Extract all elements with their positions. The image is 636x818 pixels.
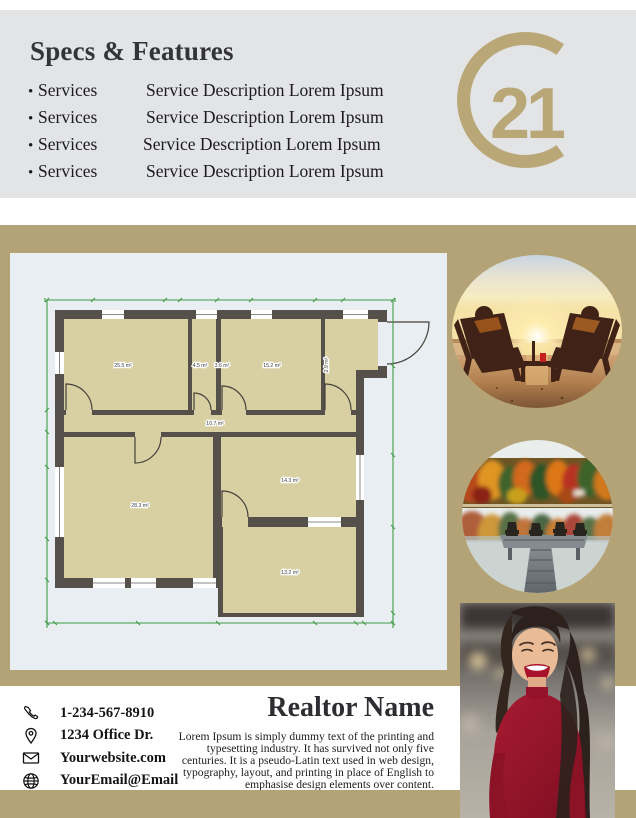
flyer-page: Specs & Features • Services Service Desc… xyxy=(0,0,636,818)
red-cup xyxy=(540,353,546,362)
bullet-icon: • xyxy=(28,165,38,182)
beach-sunset-photo xyxy=(452,255,622,408)
bullet-icon: • xyxy=(28,84,38,101)
phone-number: 1-234-567-8910 xyxy=(60,705,154,722)
page-title: Specs & Features xyxy=(30,36,234,67)
service-name: Services xyxy=(38,107,146,128)
service-description: Service Description Lorem Ipsum xyxy=(143,134,381,155)
floorplan-card: 25.5 m² 4.5 m² 3.6 m² 15.2 m² 2.9 m² 10.… xyxy=(10,253,447,670)
service-row: • Services Service Description Lorem Ips… xyxy=(28,134,428,161)
service-name: Services xyxy=(38,161,146,182)
room-label: 10.7 m² xyxy=(206,421,224,427)
realtor-info: Realtor Name Lorem Ipsum is simply dummy… xyxy=(176,692,434,791)
bullet-icon: • xyxy=(28,138,38,155)
room-label: 14.3 m² xyxy=(281,478,299,484)
globe-icon xyxy=(22,772,40,790)
office-address: 1234 Office Dr. xyxy=(60,727,153,744)
service-description: Service Description Lorem Ipsum xyxy=(146,80,384,101)
century21-logo-icon: 21 xyxy=(450,25,600,175)
realtor-bio: Lorem Ipsum is simply dummy text of the … xyxy=(176,731,434,791)
room-label: 2.9 m² xyxy=(324,357,330,372)
floorplan-drawing: 25.5 m² 4.5 m² 3.6 m² 15.2 m² 2.9 m² 10.… xyxy=(10,253,447,670)
logo-number: 21 xyxy=(490,74,565,154)
room-label: 3.6 m² xyxy=(215,363,230,369)
room-label: 4.5 m² xyxy=(193,363,208,369)
service-description: Service Description Lorem Ipsum xyxy=(146,161,384,182)
location-pin-icon xyxy=(22,727,40,745)
bullet-icon: • xyxy=(28,111,38,128)
autumn-lake-photo xyxy=(462,440,613,593)
service-name: Services xyxy=(38,134,146,155)
room-label: 15.2 m² xyxy=(263,363,281,369)
service-row: • Services Service Description Lorem Ips… xyxy=(28,80,428,107)
realtor-portrait-photo xyxy=(460,603,615,818)
envelope-icon xyxy=(22,749,40,767)
phone-icon xyxy=(22,704,40,722)
divider-strip xyxy=(0,198,636,225)
realtor-name: Realtor Name xyxy=(176,692,434,724)
room-label: 25.5 m² xyxy=(114,363,132,369)
service-row: • Services Service Description Lorem Ips… xyxy=(28,107,428,134)
services-list: • Services Service Description Lorem Ips… xyxy=(28,80,428,188)
service-row: • Services Service Description Lorem Ips… xyxy=(28,161,428,188)
room-label: 13.2 m² xyxy=(281,570,299,576)
service-description: Service Description Lorem Ipsum xyxy=(146,107,384,128)
website-url: Yourwebsite.com xyxy=(60,750,166,767)
entry-door-gap xyxy=(378,322,387,366)
email-address: YourEmail@Email xyxy=(60,772,178,789)
room-label: 28.3 m² xyxy=(131,503,149,509)
service-name: Services xyxy=(38,80,146,101)
